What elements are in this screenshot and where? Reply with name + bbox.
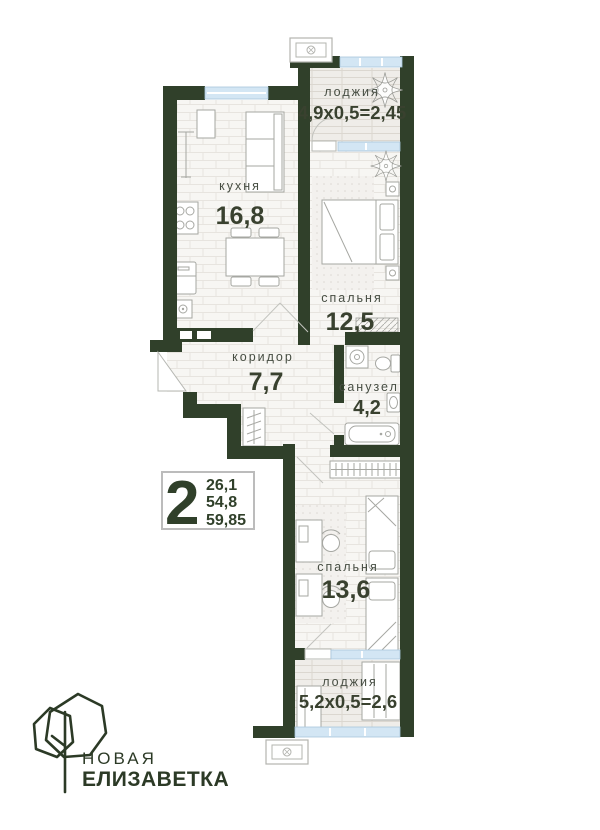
kitchen-label: кухня [219,179,261,193]
bedroom-main-label: спальня [321,291,382,305]
kitchen-window [205,87,268,99]
single-bed-icon [366,578,398,652]
loggia-top-label: лоджия [324,85,380,99]
bath-sink-icon [387,393,400,412]
living-area: 26,1 [206,477,237,494]
loggia-top-glazing [340,57,402,67]
bedroom-second-label: спальня [317,560,378,574]
floor-plan: лоджия 4,9х0,5=2,45 кухня 16,8 спальня 1… [0,0,600,830]
total-area: 59,85 [206,512,246,529]
loggia-top-dims: 4,9х0,5=2,45 [298,102,407,123]
loggia-bottom-glazing [295,727,400,737]
corridor-area: 7,7 [249,368,284,396]
bathtub-icon [345,423,399,445]
wardrobe-icon [243,408,265,446]
wall-niche [197,331,211,339]
ac-unit-icon [290,38,332,62]
apartment-area: 54,8 [206,494,237,511]
bathroom-label: санузел [339,380,399,394]
room-count: 2 [165,469,199,538]
fridge-icon [174,262,196,294]
bathroom-area: 4,2 [353,397,381,419]
washing-machine-icon [346,346,368,368]
logo-line-top: НОВАЯ [82,749,157,768]
kitchen-area: 16,8 [216,202,265,230]
double-bed-icon [322,200,398,264]
wardrobe-icon [330,461,402,478]
bedroom-main-area: 12,5 [326,308,375,336]
info-badge: 2 26,1 54,8 59,85 [162,469,254,538]
wall-niche [180,331,192,339]
corridor-label: коридор [232,350,294,364]
loggia-bottom-label: лоджия [322,675,378,689]
cabinet-icon [197,110,215,138]
brand-logo: НОВАЯ ЕЛИЗАВЕТКА [34,694,229,792]
loggia-bottom-dims: 5,2х0,5=2,6 [299,691,397,712]
ac-unit-icon [266,740,308,764]
logo-line-bottom: ЕЛИЗАВЕТКА [82,768,229,791]
bedroom-second-area: 13,6 [322,576,371,604]
